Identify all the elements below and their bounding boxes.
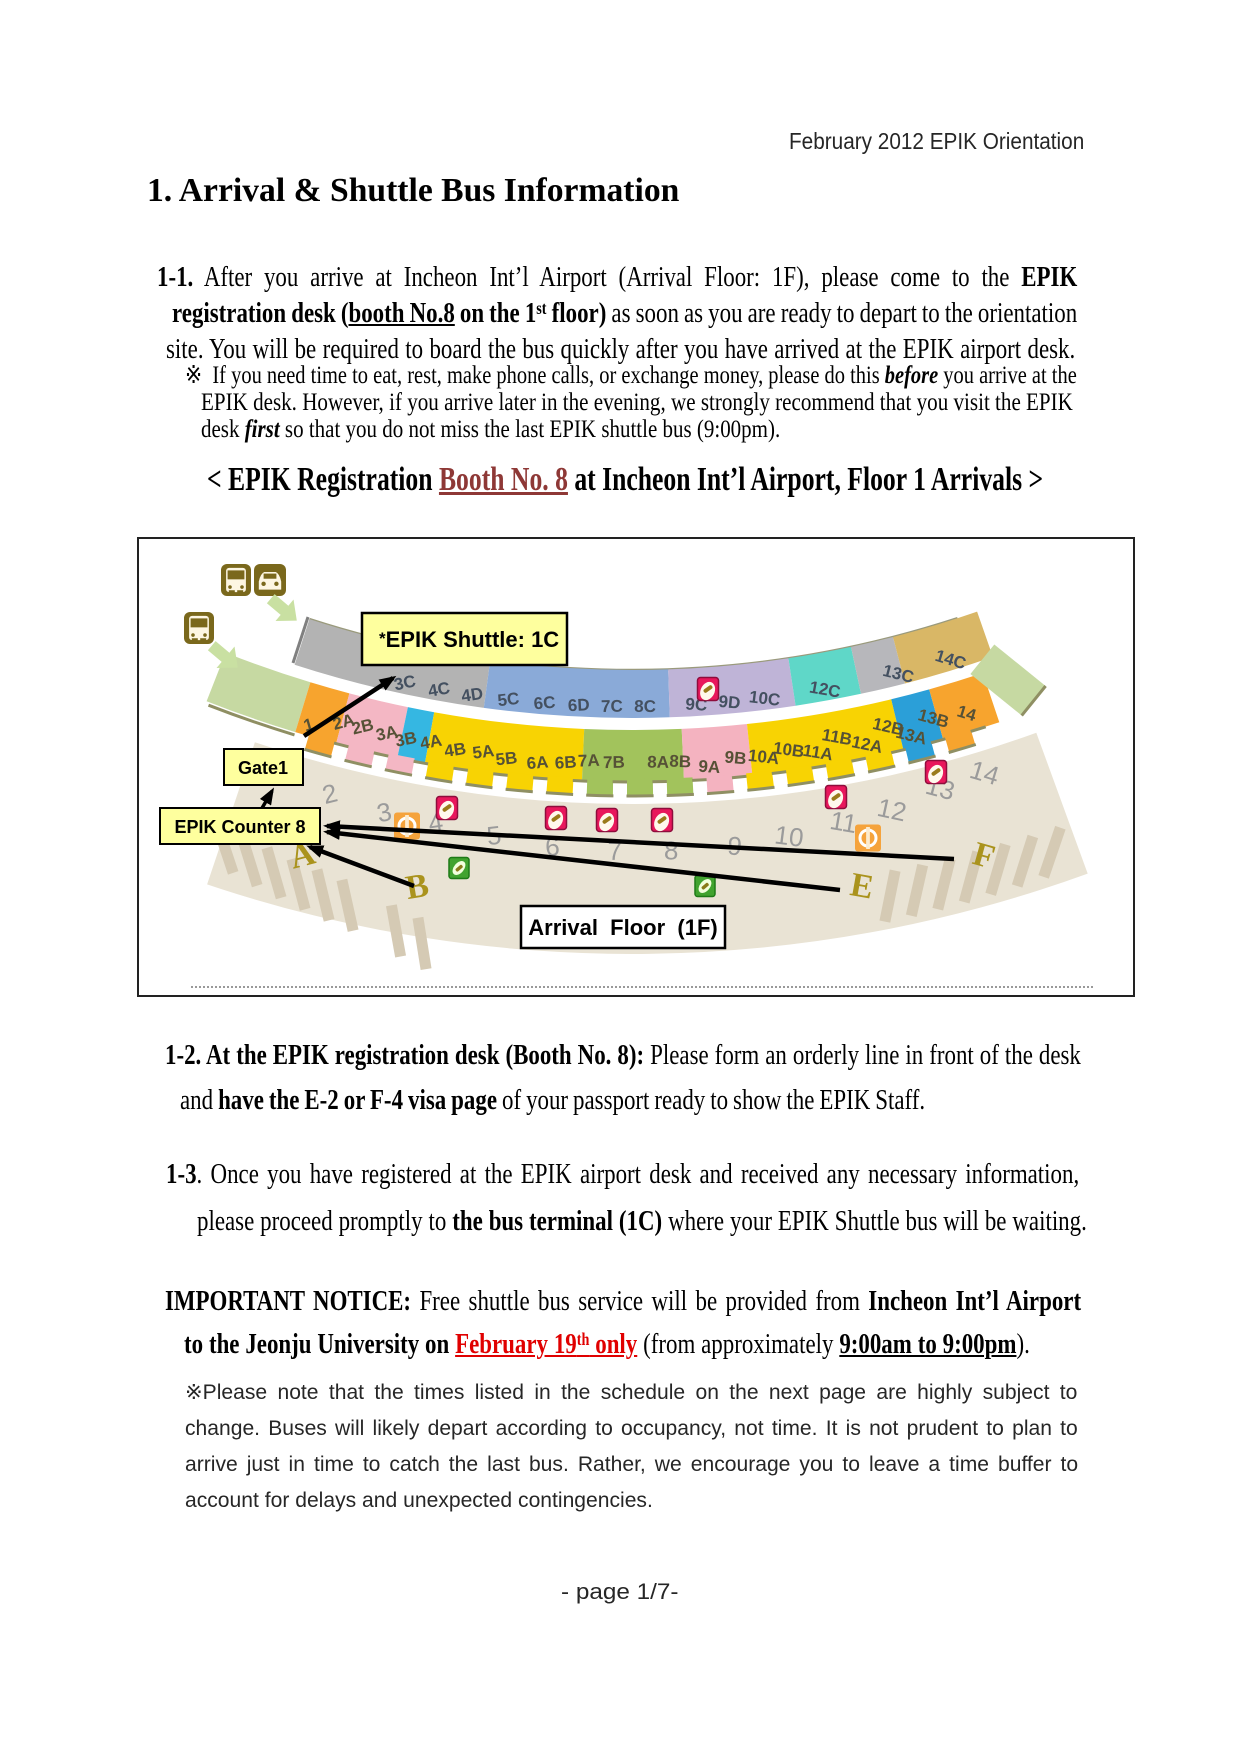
svg-text:8B: 8B <box>669 752 692 772</box>
svg-text:8C: 8C <box>634 697 656 716</box>
svg-text:4B: 4B <box>443 739 467 761</box>
svg-text:11: 11 <box>828 805 860 839</box>
svg-text:8: 8 <box>664 835 679 865</box>
svg-text:9D: 9D <box>718 692 741 713</box>
svg-text:5B: 5B <box>495 748 519 769</box>
svg-text:Gate1: Gate1 <box>238 758 288 778</box>
svg-text:7C: 7C <box>601 697 623 716</box>
svg-text:9A: 9A <box>698 757 721 777</box>
svg-text:9B: 9B <box>724 747 747 768</box>
svg-text:6B: 6B <box>554 752 577 772</box>
svg-text:Arrival Floor (1F): Arrival Floor (1F) <box>528 915 717 940</box>
svg-text:4D: 4D <box>460 684 484 706</box>
svg-text:8A: 8A <box>647 752 669 771</box>
svg-text:*EPIK Shuttle: 1C: *EPIK Shuttle: 1C <box>379 627 559 652</box>
svg-text:4C: 4C <box>427 678 452 701</box>
svg-text:6D: 6D <box>567 695 590 715</box>
svg-text:7B: 7B <box>603 753 625 772</box>
svg-text:6A: 6A <box>526 752 549 773</box>
svg-text:7A: 7A <box>578 751 600 771</box>
svg-text:12: 12 <box>875 792 910 827</box>
svg-text:6C: 6C <box>533 693 556 714</box>
svg-text:5A: 5A <box>471 741 495 763</box>
svg-text:EPIK Counter 8: EPIK Counter 8 <box>174 817 305 837</box>
svg-text:4A: 4A <box>419 731 444 754</box>
svg-text:10C: 10C <box>748 687 781 710</box>
svg-text:5C: 5C <box>497 689 521 710</box>
